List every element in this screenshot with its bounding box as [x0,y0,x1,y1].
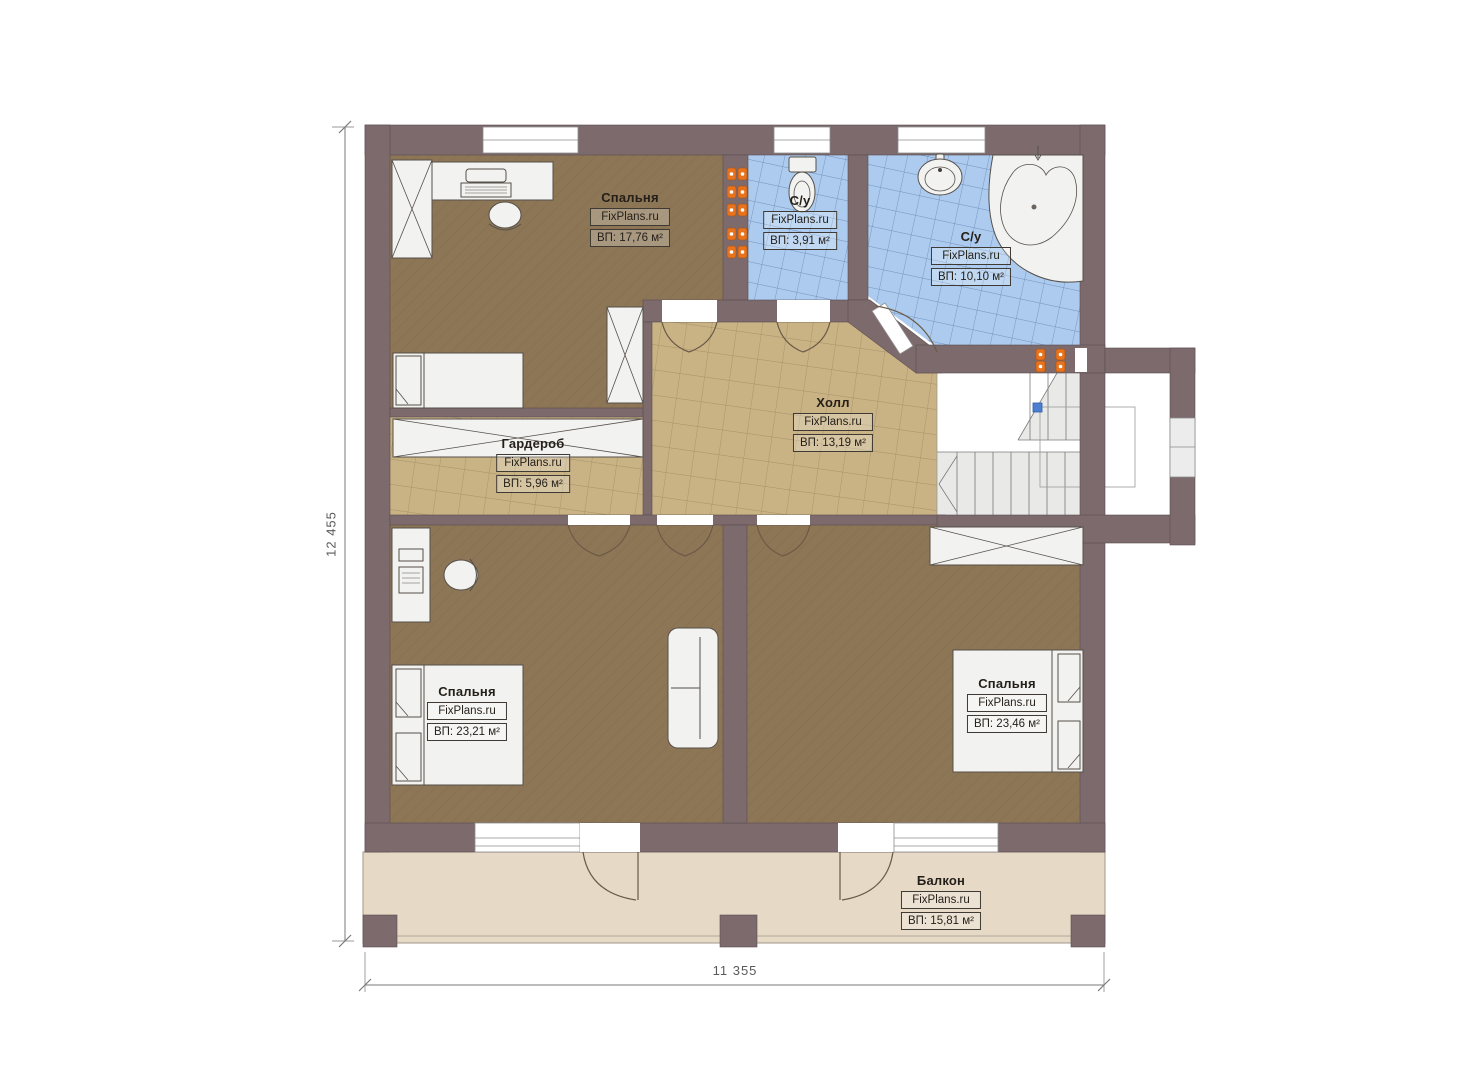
desk-2 [392,528,430,622]
pillow [1058,654,1080,702]
room-label-balcony: Балкон FixPlans.ru ВП: 15,81 м² [901,873,981,930]
brand-label: FixPlans.ru [496,454,570,472]
room-name: Спальня [427,684,507,699]
window-bottom-right [894,823,998,852]
wall-hall-west [643,322,652,515]
wall-niche-bath-large [1075,348,1087,372]
brand-label: FixPlans.ru [590,208,670,226]
wardrobe-cabinet-3 [930,527,1083,565]
printer-icon [466,169,506,182]
pillar-right [1071,915,1105,947]
brand-label: FixPlans.ru [763,211,837,229]
brand-label: FixPlans.ru [901,891,981,909]
wall-right [1080,125,1105,852]
balcony-door-right-opening [838,823,894,852]
area-label: ВП: 13,19 м² [793,434,873,452]
wall-bedrooms-divider [723,525,747,823]
wall-left [365,125,390,852]
pillow [1058,721,1080,769]
room-label-bedroom-top: Спальня FixPlans.ru ВП: 17,76 м² [590,190,670,247]
room-label-bedroom-right: Спальня FixPlans.ru ВП: 23,46 м² [967,676,1047,733]
area-label: ВП: 17,76 м² [590,229,670,247]
dimension-height-label: 12 455 [324,511,339,557]
stair-node-marker [1033,403,1042,412]
room-label-hall: Холл FixPlans.ru ВП: 13,19 м² [793,395,873,452]
room-name: Холл [793,395,873,410]
room-label-bedroom-left: Спальня FixPlans.ru ВП: 23,21 м² [427,684,507,741]
sofa-icon [668,628,718,748]
brand-label: FixPlans.ru [793,413,873,431]
area-label: ВП: 15,81 м² [901,912,981,930]
pillow [396,669,421,717]
area-label: ВП: 23,21 м² [427,723,507,741]
room-name: Спальня [967,676,1047,691]
room-name: С/у [763,193,837,208]
pillow [396,356,421,405]
brand-label: FixPlans.ru [931,247,1011,265]
room-label-wardrobe: Гардероб FixPlans.ru ВП: 5,96 м² [496,436,570,493]
wall-bath-shaft [848,155,868,300]
floor-plan-canvas: Спальня FixPlans.ru ВП: 17,76 м² С/у Fix… [0,0,1474,1080]
area-label: ВП: 23,46 м² [967,715,1047,733]
floor-plan-drawing [0,0,1474,1080]
window-bottom-left [475,823,580,852]
window-annex [1170,418,1195,477]
area-label: ВП: 3,91 м² [763,232,837,250]
wardrobe-cabinet-1 [392,160,432,258]
room-name: С/у [931,229,1011,244]
single-bed [393,353,523,408]
brand-label: FixPlans.ru [427,702,507,720]
room-name: Спальня [590,190,670,205]
pillar-middle [720,915,757,947]
dimension-width-label: 11 355 [713,963,758,978]
brand-label: FixPlans.ru [967,694,1047,712]
room-name: Гардероб [496,436,570,451]
room-label-bath-large: С/у FixPlans.ru ВП: 10,10 м² [931,229,1011,286]
area-label: ВП: 5,96 м² [496,475,570,493]
wall-bedroom-wardrobe [390,408,643,417]
chair-2 [444,559,478,591]
area-label: ВП: 10,10 м² [931,268,1011,286]
pillow [396,733,421,781]
wall-top [365,125,1105,155]
room-label-bath-small: С/у FixPlans.ru ВП: 3,91 м² [763,193,837,250]
pillar-left [363,915,397,947]
room-name: Балкон [901,873,981,888]
desk-1 [432,162,553,200]
wardrobe-cabinet-2 [607,307,643,403]
balcony-door-left-opening [580,823,640,852]
